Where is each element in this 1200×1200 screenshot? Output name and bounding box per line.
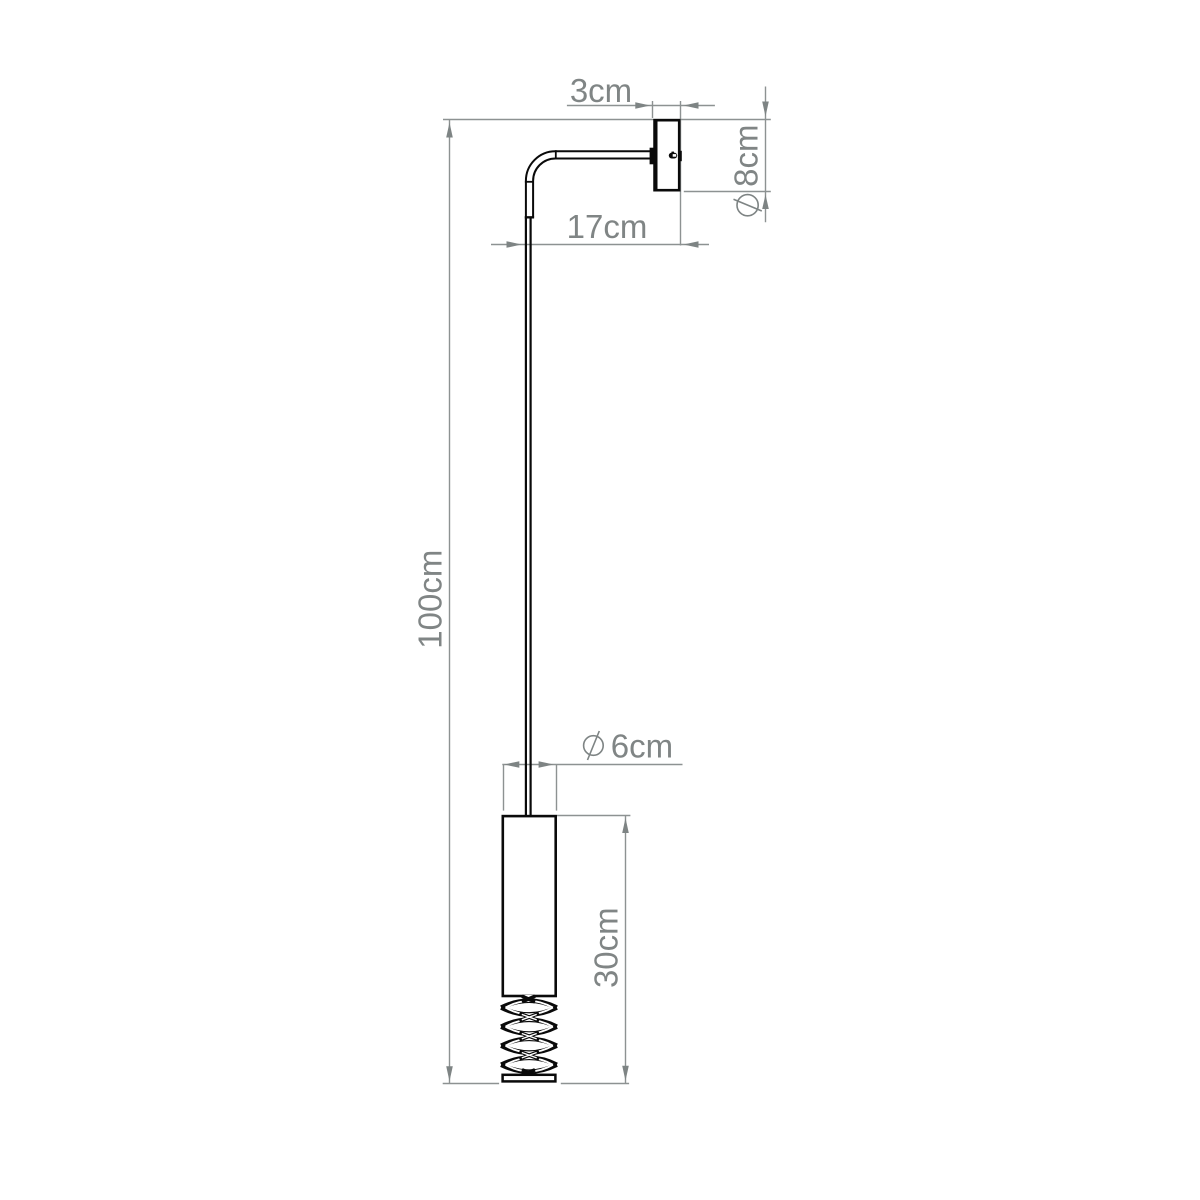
svg-text:17cm: 17cm bbox=[567, 208, 648, 245]
svg-text:3cm: 3cm bbox=[570, 72, 632, 109]
svg-text:100cm: 100cm bbox=[412, 550, 449, 649]
svg-text:8cm: 8cm bbox=[728, 125, 765, 187]
svg-text:6cm: 6cm bbox=[611, 728, 673, 765]
svg-text:30cm: 30cm bbox=[587, 907, 624, 988]
